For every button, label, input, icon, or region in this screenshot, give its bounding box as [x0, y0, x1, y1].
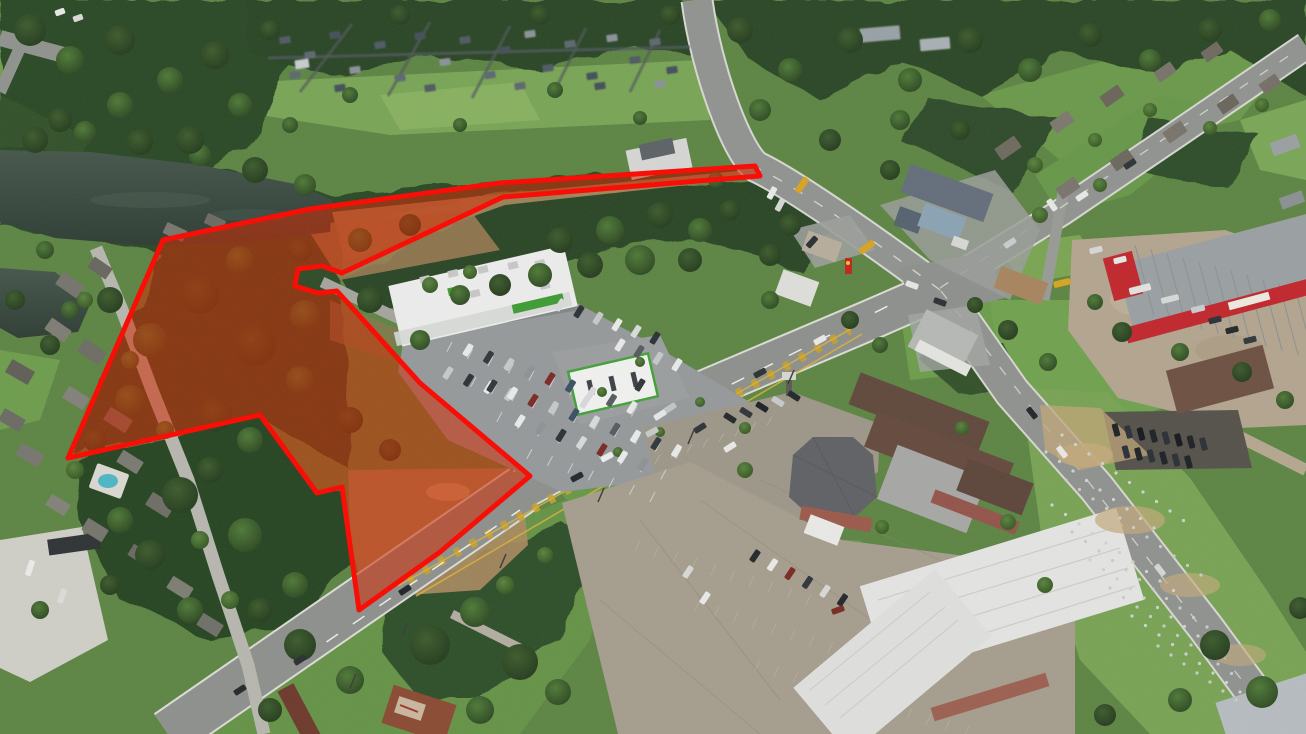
photo-grain: [0, 0, 1306, 734]
aerial-photo-frame: [0, 0, 1306, 734]
aerial-site-photo: [0, 0, 1306, 734]
layer-grain: [0, 0, 1306, 734]
